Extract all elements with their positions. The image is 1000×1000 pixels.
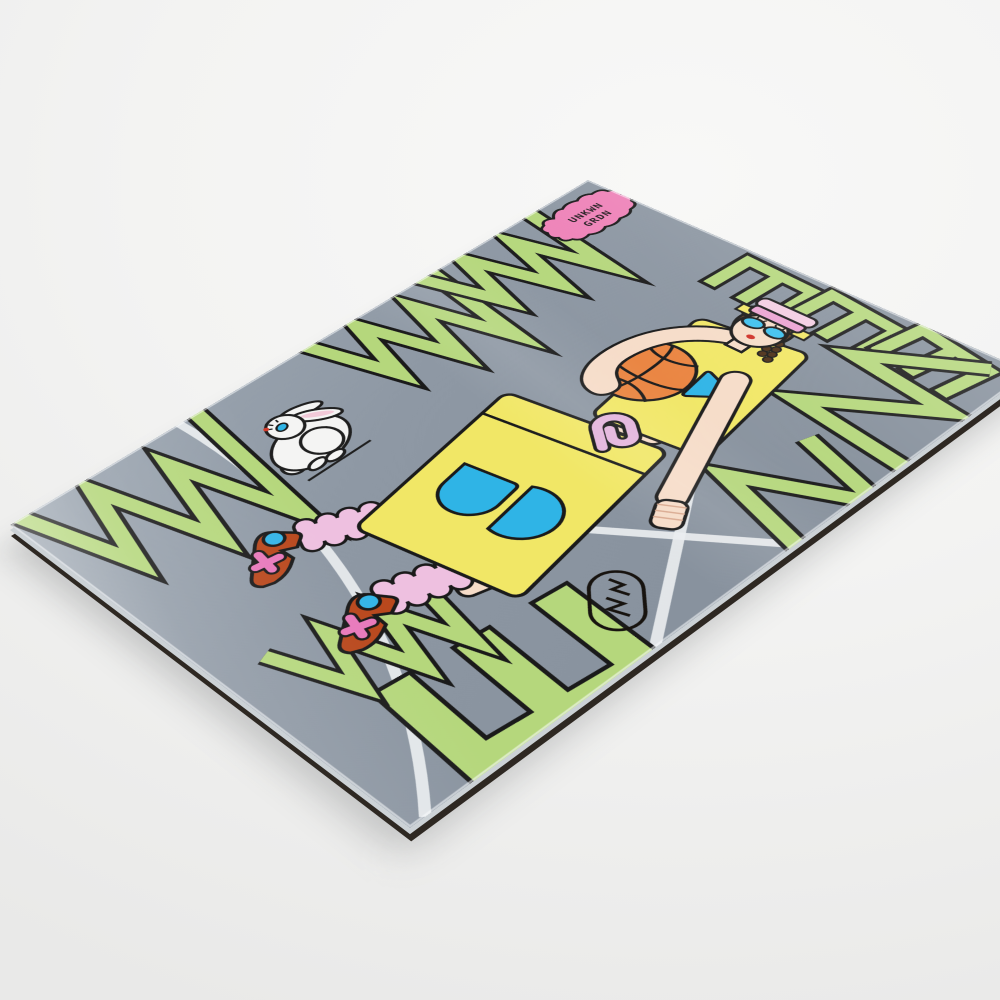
player-hand	[648, 499, 689, 531]
shorts-squiggle	[595, 416, 636, 448]
photo-background: UNKWN GRDN	[0, 0, 1000, 1000]
